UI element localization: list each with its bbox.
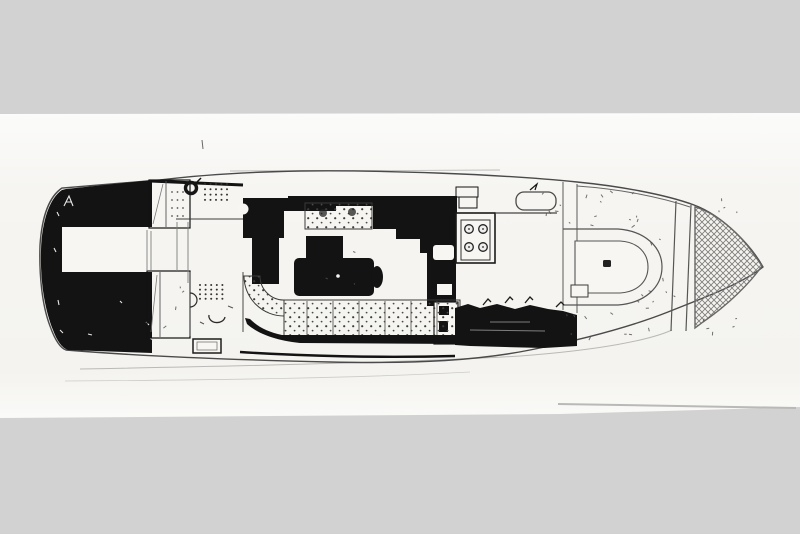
screenshot-root: [0, 0, 800, 534]
upper-settee: [305, 203, 372, 229]
side-deck-band: [455, 304, 577, 348]
deck-plan-scan: [0, 0, 800, 534]
stern-deck: [41, 180, 153, 353]
